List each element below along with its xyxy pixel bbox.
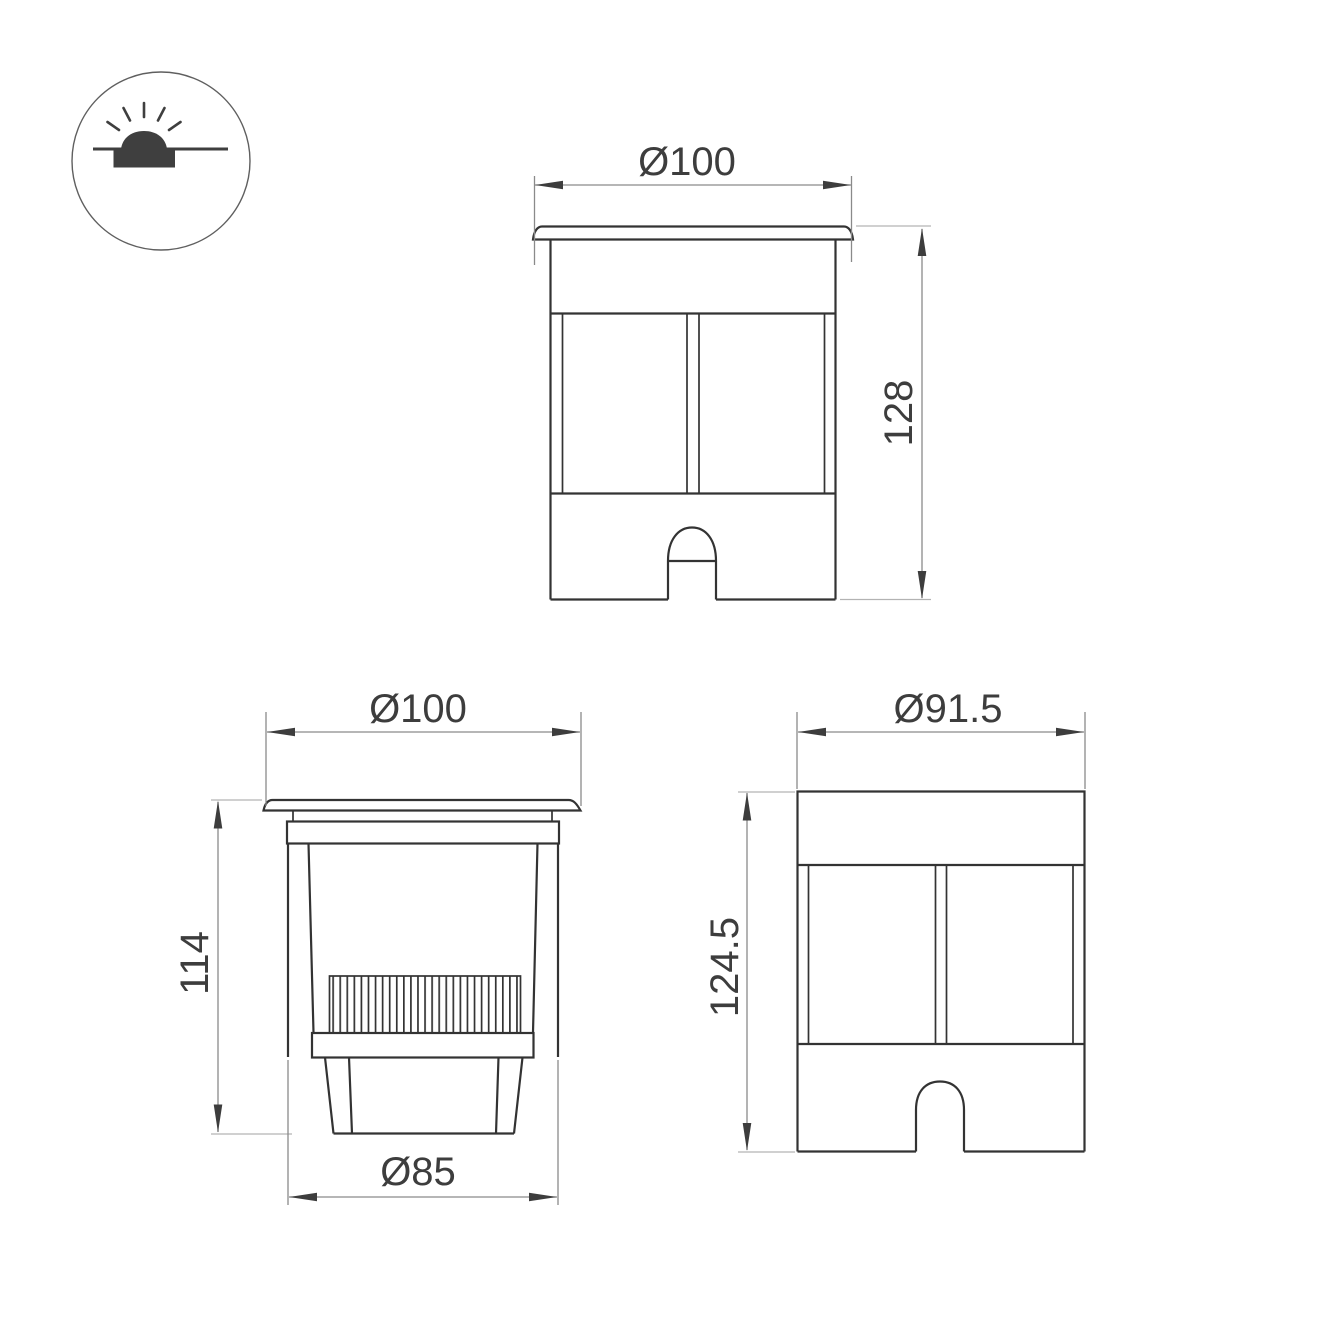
icon-light-dome xyxy=(121,131,167,149)
icon-recessed-body xyxy=(114,151,176,168)
icon-light-rays xyxy=(108,103,181,130)
section-base-plate xyxy=(312,1033,534,1058)
section-view: Ø100 114 Ø85 xyxy=(173,687,581,1205)
front-glass-dividers xyxy=(563,314,825,494)
front-cable-notch xyxy=(668,528,716,600)
section-bottom-width-label: Ø85 xyxy=(380,1150,456,1194)
front-view: Ø100 128 xyxy=(533,140,931,600)
side-body-outline xyxy=(798,792,1085,1152)
section-connector-base xyxy=(325,1058,523,1134)
front-flange xyxy=(533,227,853,240)
technical-drawing-canvas: Ø100 128 Ø100 114 xyxy=(0,0,1331,1331)
front-body-walls xyxy=(551,240,836,600)
section-flange xyxy=(264,800,581,811)
front-body-section-lines xyxy=(551,314,836,494)
section-height-label: 114 xyxy=(173,931,217,995)
side-width-label: Ø91.5 xyxy=(894,687,1003,731)
side-height-dimension: 124.5 xyxy=(703,792,795,1152)
front-width-label: Ø100 xyxy=(638,140,736,184)
drawing-sheet: Ø100 128 Ø100 114 xyxy=(0,0,1331,1331)
section-neck xyxy=(293,811,552,822)
recessed-light-icon xyxy=(72,72,250,250)
front-width-dimension: Ø100 xyxy=(535,140,852,265)
side-glass-dividers xyxy=(809,865,1074,1044)
section-heatsink-fins xyxy=(330,976,521,1033)
section-width-label: Ø100 xyxy=(369,687,467,731)
front-height-dimension: 128 xyxy=(840,226,931,600)
front-height-label: 128 xyxy=(877,380,921,447)
side-view: Ø91.5 124.5 xyxy=(703,687,1085,1152)
front-width-extension-lines xyxy=(535,176,852,265)
side-height-label: 124.5 xyxy=(703,917,747,1017)
section-height-extension-lines xyxy=(211,800,292,1134)
section-width-dimension: Ø100 xyxy=(266,687,581,806)
side-width-dimension: Ø91.5 xyxy=(797,687,1085,789)
section-height-dimension: 114 xyxy=(173,800,292,1134)
side-cable-notch xyxy=(916,1082,964,1152)
side-body-section-lines xyxy=(798,865,1085,1044)
section-collar xyxy=(287,822,559,844)
